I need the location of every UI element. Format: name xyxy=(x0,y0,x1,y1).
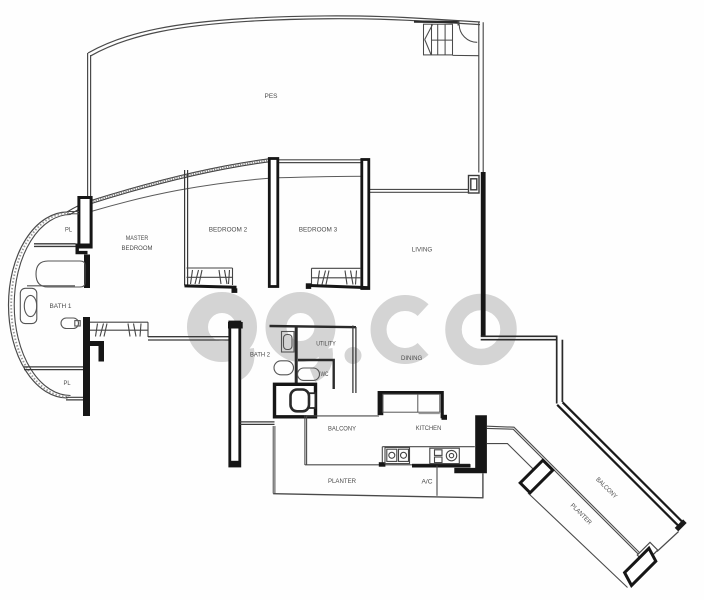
svg-text:UTILITY: UTILITY xyxy=(316,341,336,348)
svg-text:LIVING: LIVING xyxy=(412,247,433,254)
svg-text:PL: PL xyxy=(65,227,72,234)
svg-text:A/C: A/C xyxy=(422,479,433,486)
svg-text:PLANTER: PLANTER xyxy=(328,478,356,485)
svg-text:MASTER: MASTER xyxy=(126,235,149,242)
svg-text:BEDROOM: BEDROOM xyxy=(122,245,153,252)
svg-text:BATH 1: BATH 1 xyxy=(50,303,73,310)
svg-text:BEDROOM 2: BEDROOM 2 xyxy=(209,226,248,233)
svg-text:DINING: DINING xyxy=(401,355,422,362)
svg-text:BEDROOM 3: BEDROOM 3 xyxy=(299,226,338,233)
svg-text:KITCHEN: KITCHEN xyxy=(416,425,442,432)
svg-text:PL: PL xyxy=(64,380,71,387)
svg-text:BATH 2: BATH 2 xyxy=(250,352,270,359)
svg-text:PES: PES xyxy=(265,93,278,100)
svg-text:WC: WC xyxy=(321,371,329,378)
svg-text:BALCONY: BALCONY xyxy=(594,476,619,501)
svg-text:BALCONY: BALCONY xyxy=(328,426,357,433)
